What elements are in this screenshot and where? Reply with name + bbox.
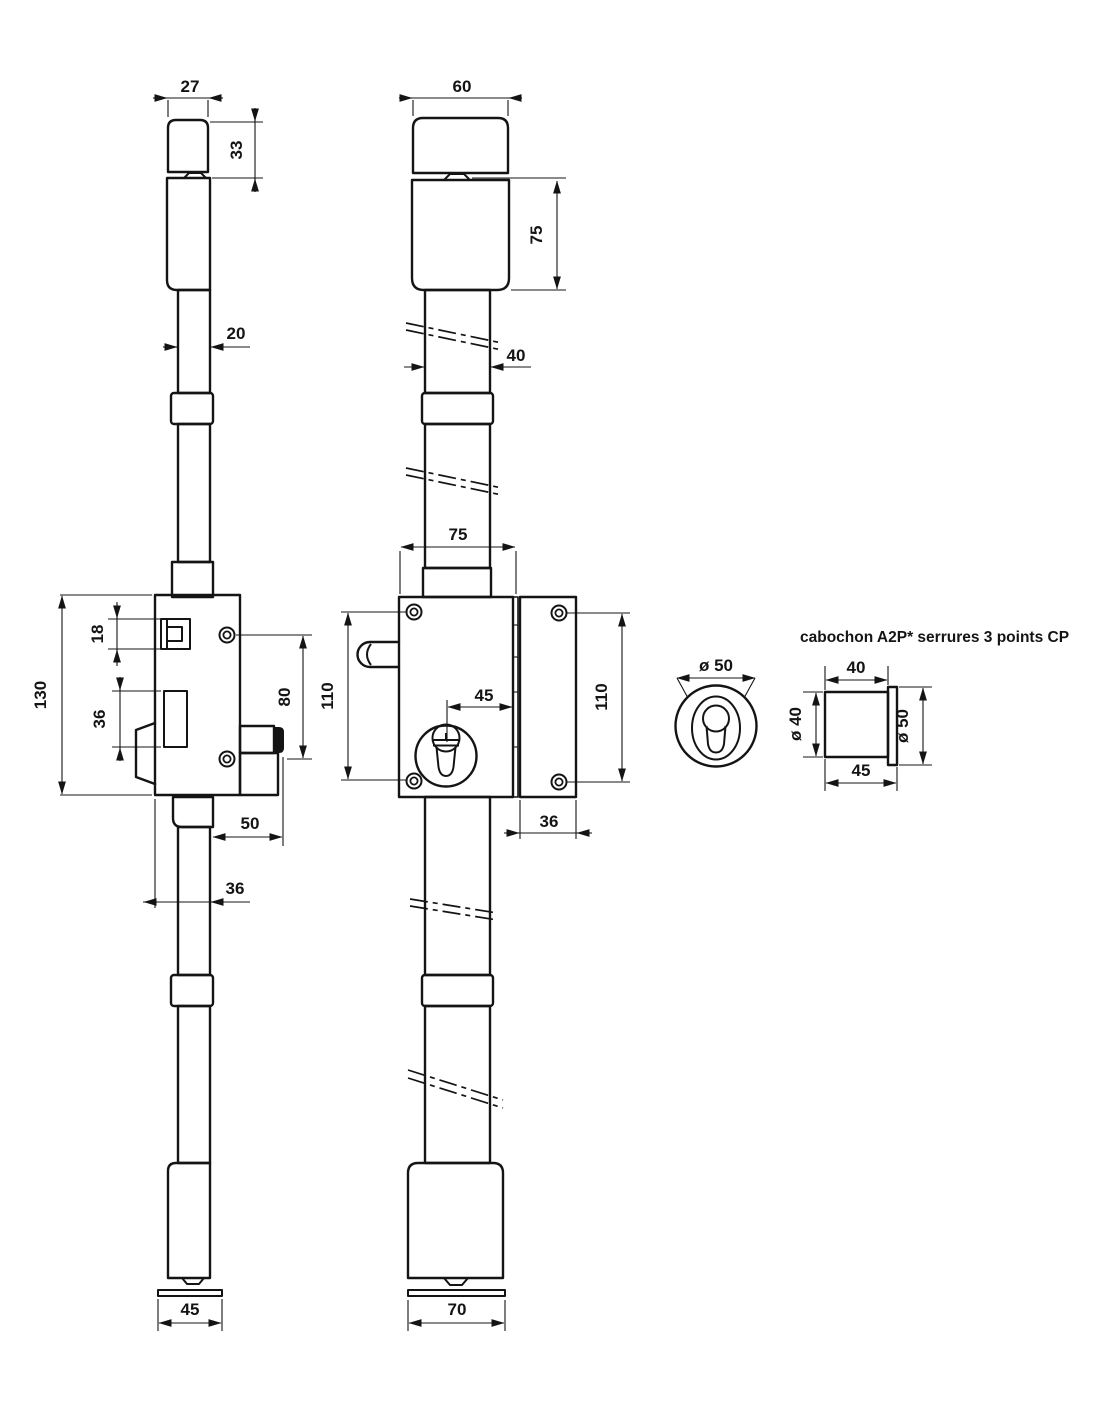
dim-cabochon-body-diameter: ø 40 bbox=[786, 707, 805, 741]
side-view-dimensions: 27 33 20 130 18 36 80 bbox=[31, 77, 312, 1331]
side-top-cap bbox=[168, 120, 208, 172]
dim-front-cylinder-offset: 45 bbox=[475, 686, 494, 705]
dim-front-case-width: 75 bbox=[449, 525, 468, 544]
side-deadbolt-end-cap bbox=[274, 727, 284, 753]
front-bottom-cap bbox=[408, 1163, 503, 1278]
side-upper-body bbox=[167, 178, 210, 290]
break-line bbox=[408, 1078, 503, 1108]
dim-side-screw-spacing: 80 bbox=[275, 688, 294, 707]
dim-cabochon-depth: 45 bbox=[852, 761, 871, 780]
dim-side-bolt-throw: 50 bbox=[241, 814, 260, 833]
front-rod-guide-block bbox=[422, 975, 493, 1006]
side-screw-bottom-inner bbox=[223, 755, 230, 762]
side-floor-keeper-plate bbox=[158, 1290, 222, 1296]
lock-technical-drawing: 27 33 20 130 18 36 80 bbox=[0, 0, 1100, 1422]
front-knob bbox=[357, 642, 399, 667]
side-rod-segment bbox=[178, 1006, 210, 1163]
side-deadbolt bbox=[240, 726, 274, 753]
side-rod-segment bbox=[178, 827, 210, 975]
cabochon-side-view: 40 ø 40 ø 50 45 bbox=[786, 658, 932, 791]
front-faceplate-edge bbox=[513, 597, 518, 797]
dim-side-follower-height: 36 bbox=[90, 710, 109, 729]
break-line bbox=[410, 899, 497, 913]
dim-front-upper-body-height: 75 bbox=[527, 226, 546, 245]
front-rod-segment bbox=[425, 424, 490, 568]
front-screw-top bbox=[407, 605, 422, 620]
dim-side-rod-width: 20 bbox=[227, 324, 246, 343]
front-knob-arc bbox=[367, 644, 371, 665]
dim-side-case-height: 130 bbox=[31, 681, 50, 709]
dim-front-case-screw-spacing: 110 bbox=[318, 682, 337, 709]
front-upper-body bbox=[412, 180, 509, 290]
technical-drawing-page: 27 33 20 130 18 36 80 bbox=[0, 0, 1100, 1422]
dim-front-cap-width: 60 bbox=[453, 77, 472, 96]
side-latch-bolt bbox=[167, 619, 190, 649]
strike-screw-bottom bbox=[552, 775, 567, 790]
side-view bbox=[136, 120, 284, 1296]
dim-strike-width: 36 bbox=[540, 812, 559, 831]
front-screw-top-inner bbox=[410, 608, 417, 615]
dim-side-cap-width: 27 bbox=[181, 77, 200, 96]
front-lock-case bbox=[399, 597, 513, 797]
dim-front-rod-width: 40 bbox=[507, 346, 526, 365]
side-bolt-housing bbox=[240, 753, 278, 795]
dim-cabochon-body-width: 40 bbox=[847, 658, 866, 677]
side-bottom-cap bbox=[168, 1163, 210, 1278]
front-rod-segment bbox=[425, 1006, 490, 1163]
front-view-dimensions: 60 75 40 75 110 45 110 36 bbox=[318, 77, 630, 1331]
dim-cabochon-flange-diameter: ø 50 bbox=[893, 709, 912, 743]
side-screw-top bbox=[220, 628, 235, 643]
side-rod-guide-block bbox=[171, 975, 213, 1006]
side-screw-bottom bbox=[220, 752, 235, 767]
dim-front-floor-plate: 70 bbox=[448, 1300, 467, 1319]
strike-screw-top bbox=[552, 606, 567, 621]
cabochon-body bbox=[825, 692, 888, 757]
side-cylinder-protrusion bbox=[136, 723, 155, 784]
dim-strike-screw-spacing: 110 bbox=[592, 683, 611, 710]
cabochon-face-view: ø 50 bbox=[676, 656, 757, 767]
side-rod-collar-bottom bbox=[173, 797, 213, 827]
side-bottom-pin bbox=[182, 1278, 204, 1284]
front-screw-bottom-inner bbox=[410, 777, 417, 784]
side-rod-guide-block bbox=[171, 393, 213, 424]
break-line bbox=[410, 906, 497, 920]
cabochon-caption: cabochon A2P* serrures 3 points CP bbox=[800, 629, 1069, 646]
break-line bbox=[408, 1070, 503, 1100]
front-rod-segment bbox=[425, 290, 490, 393]
front-rod-collar-top bbox=[423, 568, 491, 597]
front-top-cap bbox=[413, 118, 508, 173]
extension-line bbox=[744, 678, 755, 698]
drawing-title: cabochon A2P* serrures 3 points CP bbox=[800, 629, 1069, 646]
side-rod-collar-top bbox=[172, 562, 213, 597]
side-rod-segment bbox=[178, 290, 210, 393]
side-screw-top-inner bbox=[223, 631, 230, 638]
side-follower-slot bbox=[164, 691, 187, 747]
dim-side-cap-height: 33 bbox=[227, 141, 246, 160]
front-rod-segment bbox=[425, 797, 490, 975]
side-rod-segment bbox=[178, 424, 210, 562]
dim-side-latch-height: 18 bbox=[88, 625, 107, 644]
front-rod-guide-block bbox=[422, 393, 493, 424]
strike-plate bbox=[520, 597, 576, 797]
strike-screw-top-inner bbox=[555, 609, 562, 616]
dim-side-floor-plate: 45 bbox=[181, 1300, 200, 1319]
extension-line bbox=[677, 678, 688, 698]
dim-cabochon-face-diameter: ø 50 bbox=[699, 656, 733, 675]
dim-side-rod-offset: 36 bbox=[226, 879, 245, 898]
strike-screw-bottom-inner bbox=[555, 778, 562, 785]
front-screw-bottom bbox=[407, 774, 422, 789]
front-floor-keeper-plate bbox=[408, 1290, 505, 1296]
